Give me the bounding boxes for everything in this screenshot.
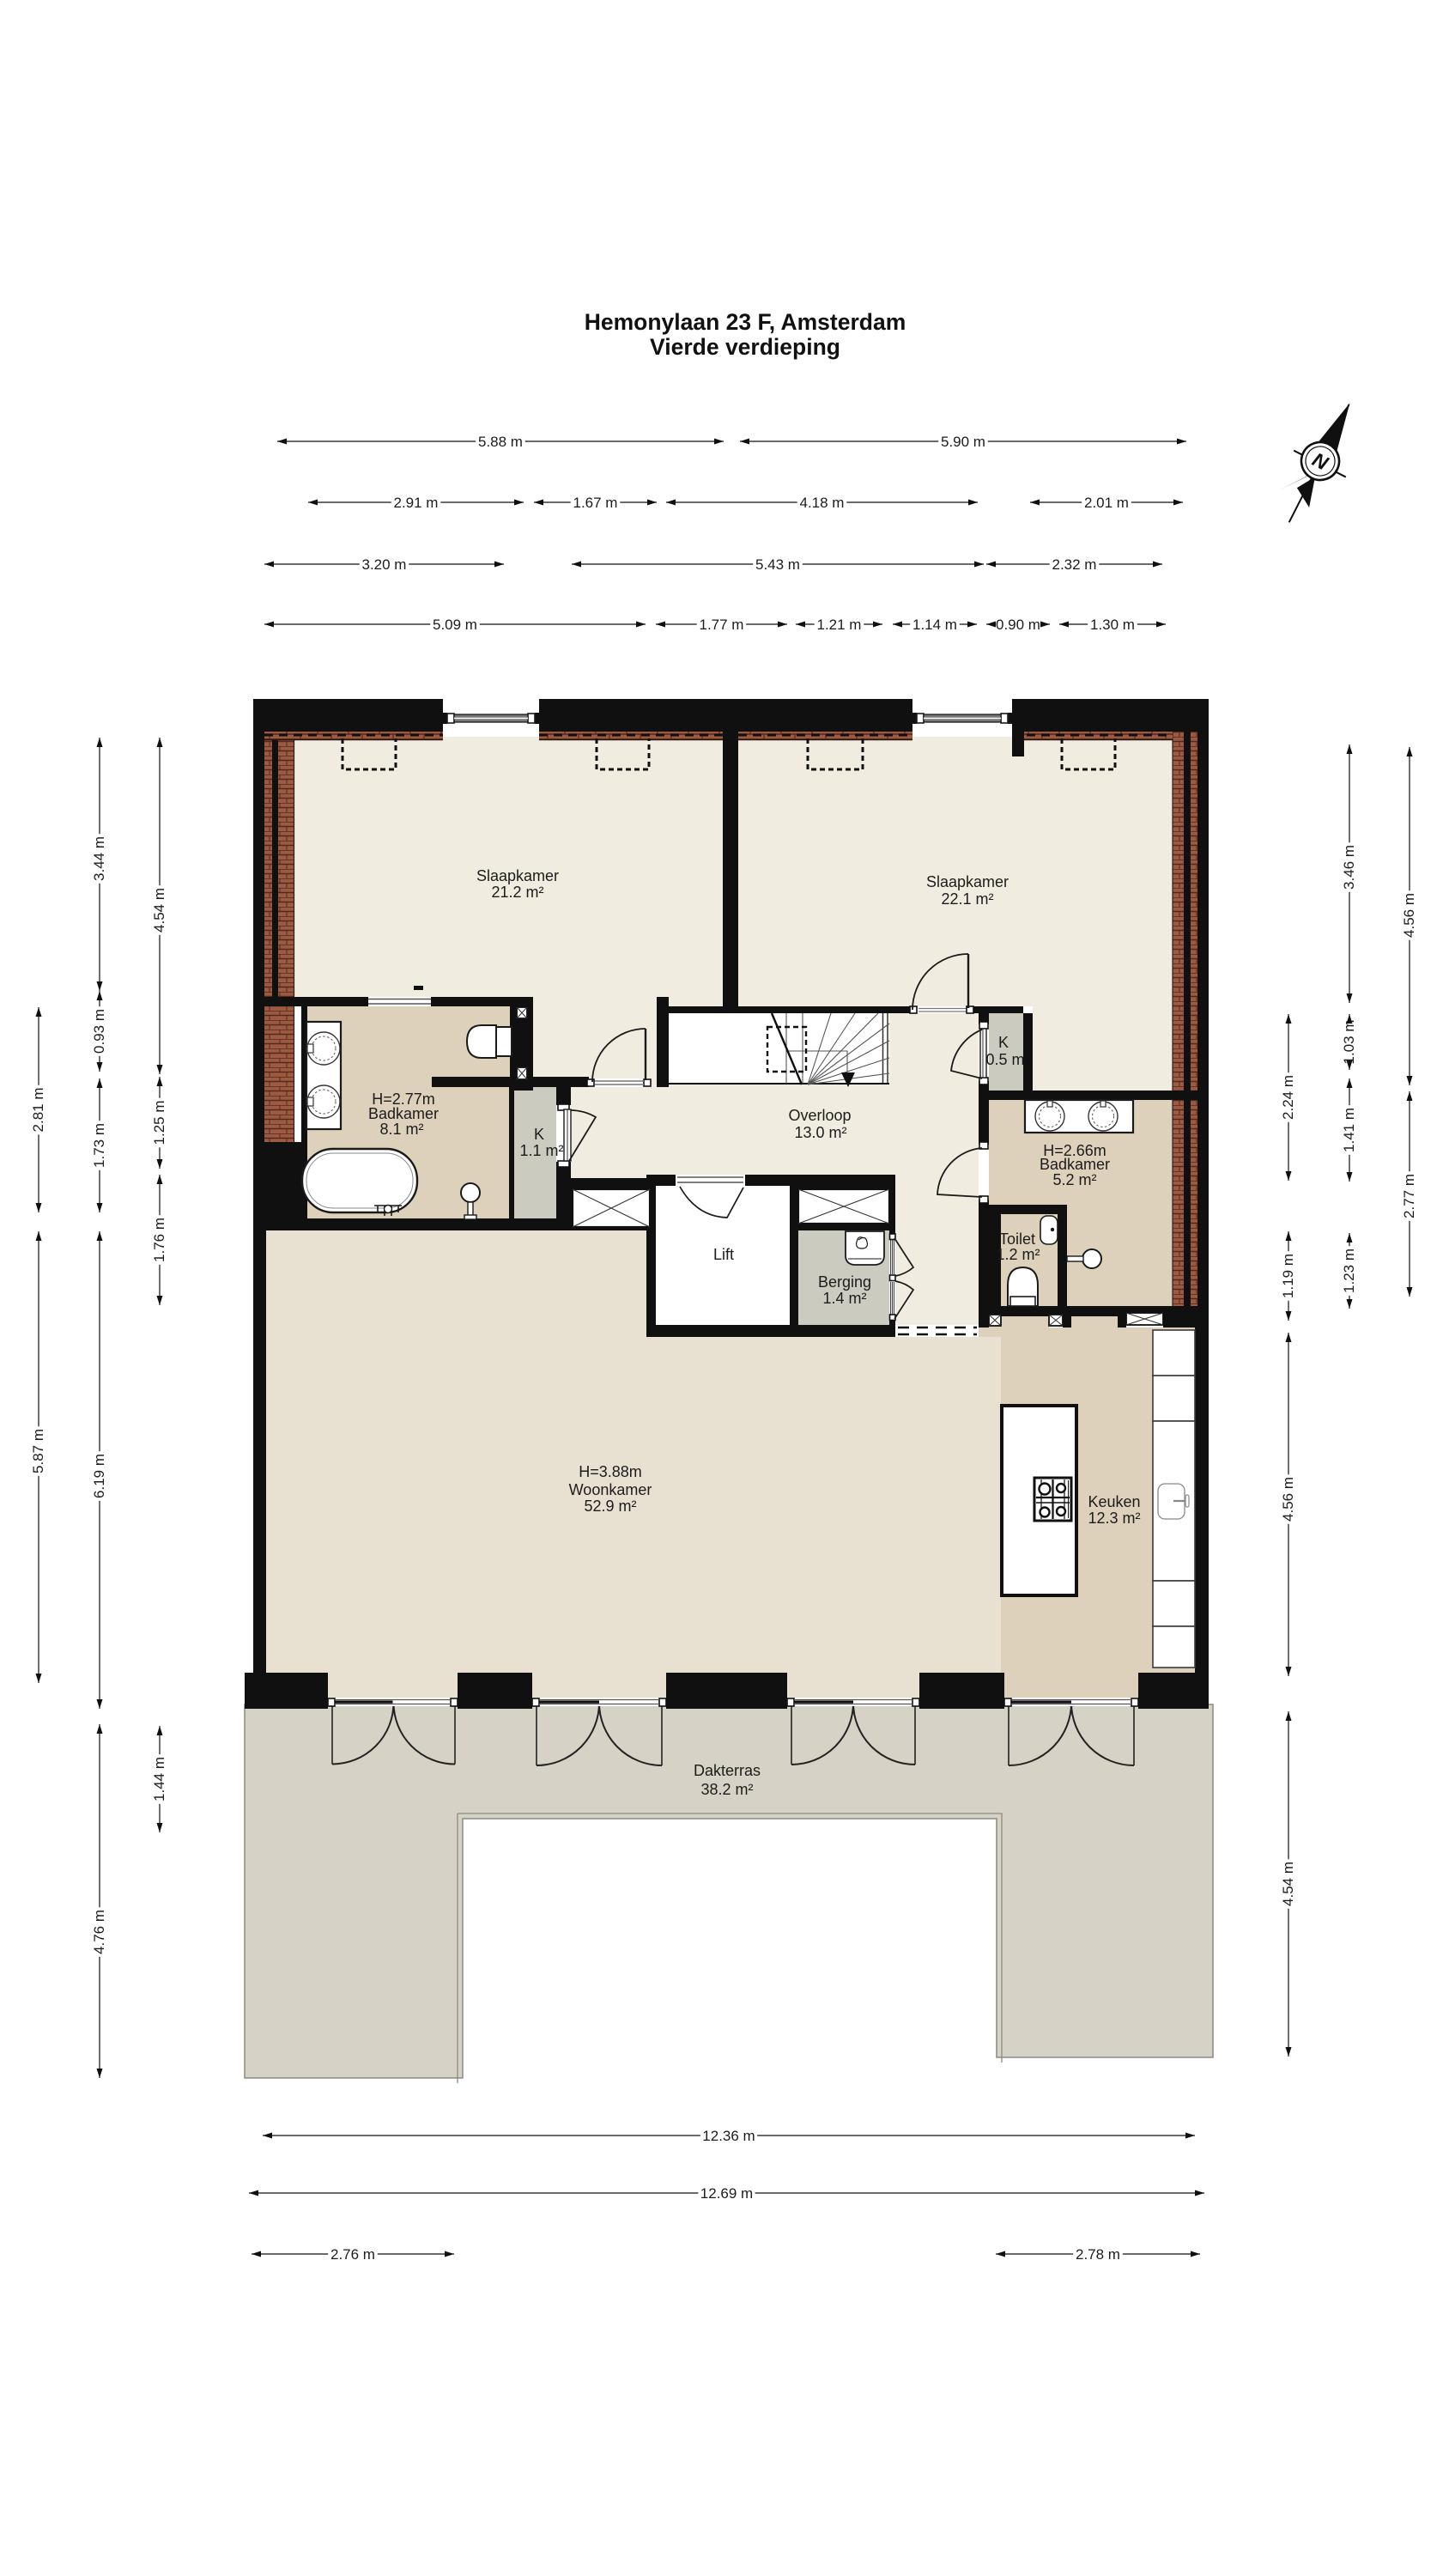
svg-text:12.3 m²: 12.3 m² (1088, 1510, 1140, 1527)
svg-text:1.21 m: 1.21 m (817, 617, 862, 633)
svg-text:1.4 m²: 1.4 m² (822, 1290, 866, 1307)
svg-text:K: K (534, 1126, 544, 1143)
svg-text:0.93 m: 0.93 m (91, 1009, 107, 1054)
svg-text:K: K (998, 1034, 1009, 1051)
svg-text:1.44 m: 1.44 m (151, 1757, 167, 1801)
svg-text:1.25 m: 1.25 m (151, 1101, 167, 1145)
svg-text:4.56 m: 4.56 m (1280, 1477, 1296, 1522)
svg-text:1.23 m: 1.23 m (1341, 1249, 1357, 1293)
svg-text:Slaapkamer: Slaapkamer (476, 867, 559, 884)
svg-text:5.88 m: 5.88 m (478, 434, 523, 450)
svg-text:2.77 m: 2.77 m (1401, 1174, 1417, 1218)
svg-text:Badkamer: Badkamer (1040, 1156, 1110, 1173)
svg-text:22.1 m²: 22.1 m² (941, 890, 993, 908)
svg-text:1.76 m: 1.76 m (151, 1218, 167, 1262)
svg-text:1.77 m: 1.77 m (700, 617, 744, 633)
svg-text:3.44 m: 3.44 m (91, 836, 107, 881)
svg-text:Overloop: Overloop (788, 1107, 851, 1124)
svg-text:38.2 m²: 38.2 m² (700, 1781, 753, 1798)
svg-text:13.0 m²: 13.0 m² (794, 1124, 846, 1141)
svg-text:5.09 m: 5.09 m (433, 617, 477, 633)
svg-text:0.90 m: 0.90 m (996, 617, 1040, 633)
svg-text:12.69 m: 12.69 m (700, 2185, 753, 2202)
svg-text:1.03 m: 1.03 m (1341, 1020, 1357, 1065)
svg-text:Vierde verdieping: Vierde verdieping (650, 334, 840, 360)
svg-text:Keuken: Keuken (1088, 1493, 1140, 1510)
svg-text:4.18 m: 4.18 m (800, 495, 845, 511)
svg-text:52.9 m²: 52.9 m² (584, 1498, 636, 1515)
svg-text:3.20 m: 3.20 m (362, 556, 407, 573)
svg-text:8.1 m²: 8.1 m² (379, 1121, 423, 1138)
svg-text:0.5 m: 0.5 m (985, 1051, 1024, 1068)
svg-text:1.41 m: 1.41 m (1341, 1108, 1357, 1152)
svg-text:5.2 m²: 5.2 m² (1052, 1171, 1096, 1188)
svg-text:1.1 m²: 1.1 m² (519, 1142, 563, 1159)
svg-text:Hemonylaan 23 F, Amsterdam: Hemonylaan 23 F, Amsterdam (585, 309, 906, 335)
svg-text:1.19 m: 1.19 m (1280, 1254, 1296, 1298)
svg-text:Toilet: Toilet (999, 1230, 1035, 1248)
svg-text:21.2 m²: 21.2 m² (491, 884, 543, 901)
svg-text:1.14 m: 1.14 m (912, 617, 957, 633)
svg-text:H=3.88m: H=3.88m (579, 1463, 642, 1480)
svg-text:6.19 m: 6.19 m (91, 1454, 107, 1498)
svg-text:4.76 m: 4.76 m (91, 1910, 107, 1954)
svg-text:Badkamer: Badkamer (368, 1105, 439, 1122)
svg-text:1.2 m²: 1.2 m² (996, 1246, 1040, 1263)
svg-text:12.36 m: 12.36 m (702, 2128, 755, 2144)
svg-text:Slaapkamer: Slaapkamer (926, 873, 1009, 890)
svg-text:Berging: Berging (818, 1273, 871, 1291)
svg-text:2.81 m: 2.81 m (30, 1088, 46, 1133)
svg-text:2.01 m: 2.01 m (1084, 495, 1129, 511)
svg-text:2.76 m: 2.76 m (330, 2246, 375, 2263)
svg-text:3.46 m: 3.46 m (1341, 845, 1357, 890)
svg-text:4.54 m: 4.54 m (1280, 1862, 1296, 1906)
svg-text:5.87 m: 5.87 m (30, 1429, 46, 1473)
svg-text:Woonkamer: Woonkamer (569, 1481, 652, 1498)
svg-text:2.91 m: 2.91 m (394, 495, 439, 511)
svg-text:2.32 m: 2.32 m (1052, 556, 1097, 573)
svg-text:5.90 m: 5.90 m (941, 434, 985, 450)
svg-text:1.73 m: 1.73 m (91, 1123, 107, 1168)
svg-text:5.43 m: 5.43 m (755, 556, 800, 573)
svg-text:Dakterras: Dakterras (694, 1762, 761, 1779)
svg-text:4.56 m: 4.56 m (1401, 893, 1417, 938)
svg-text:2.78 m: 2.78 m (1076, 2246, 1120, 2263)
svg-text:Lift: Lift (713, 1246, 734, 1263)
svg-text:1.67 m: 1.67 m (573, 495, 618, 511)
svg-text:1.30 m: 1.30 m (1090, 617, 1135, 633)
svg-text:2.24 m: 2.24 m (1280, 1075, 1296, 1120)
svg-text:4.54 m: 4.54 m (151, 888, 167, 933)
